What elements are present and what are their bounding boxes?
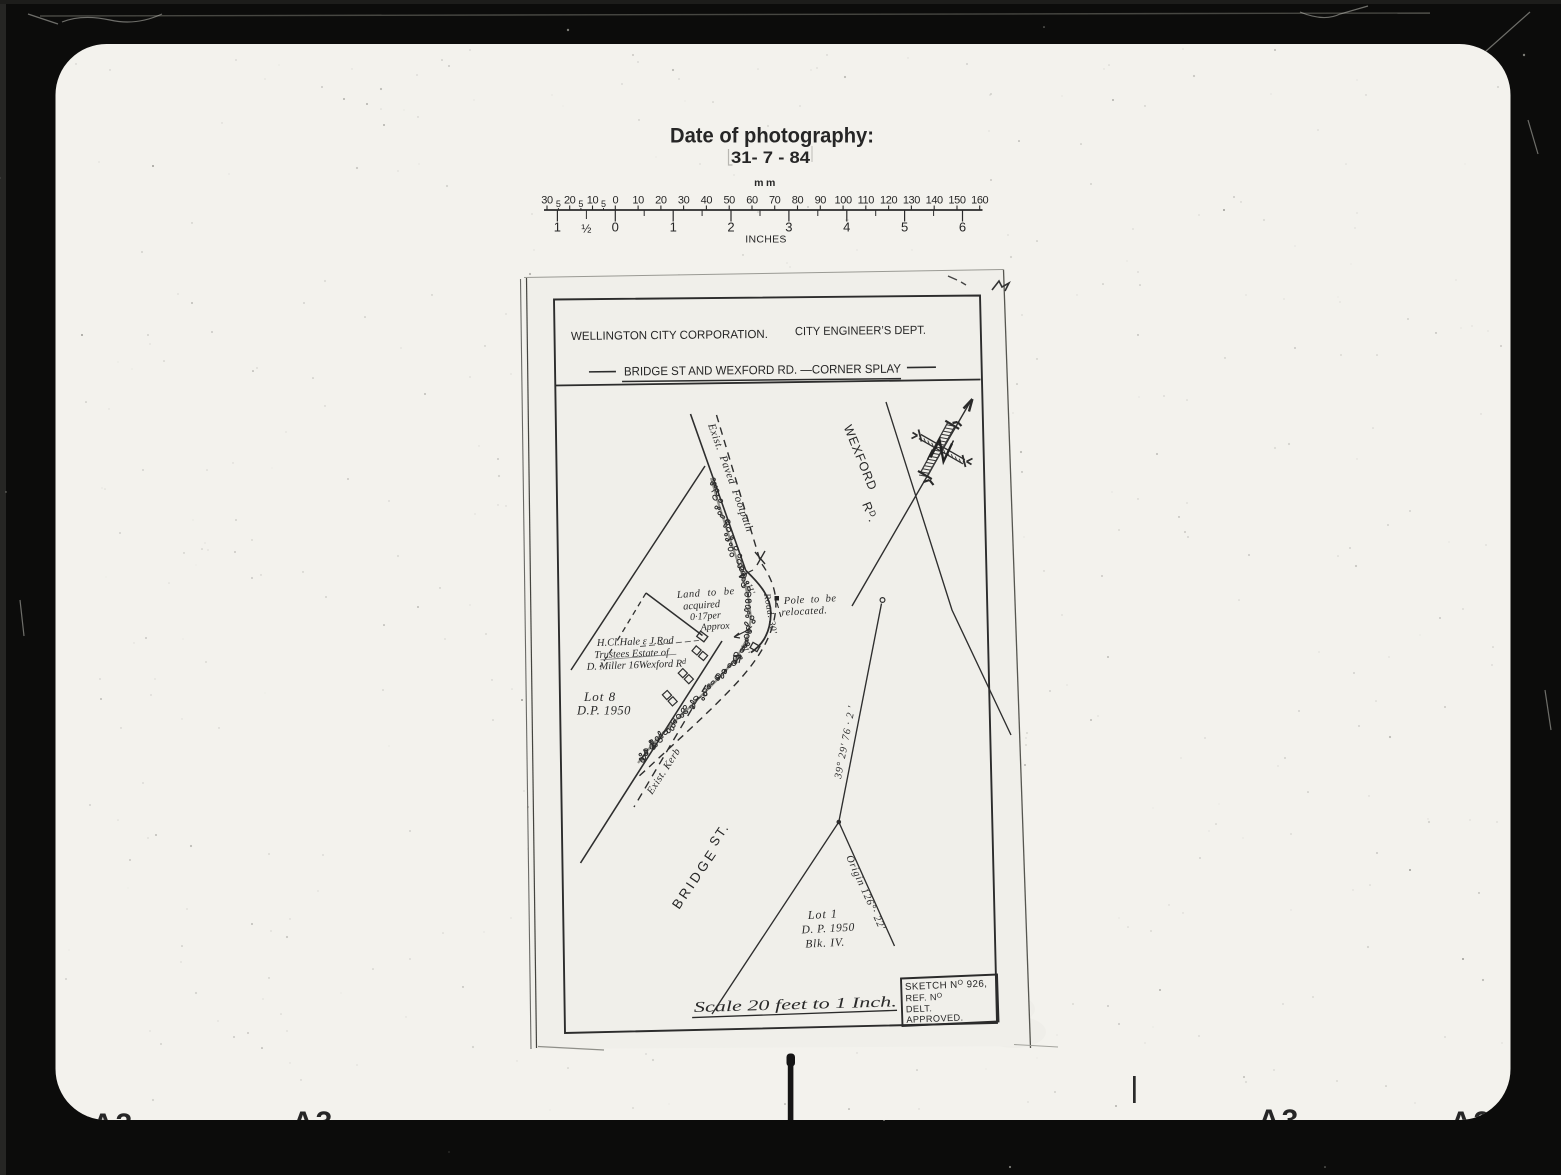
svg-text:30: 30 bbox=[541, 195, 553, 207]
svg-text:140: 140 bbox=[926, 195, 943, 207]
svg-text:10: 10 bbox=[587, 195, 599, 207]
svg-text:6: 6 bbox=[959, 220, 966, 235]
svg-text:5: 5 bbox=[556, 199, 561, 209]
svg-text:2: 2 bbox=[727, 220, 734, 235]
svg-text:20: 20 bbox=[655, 195, 667, 207]
svg-text:DELT.: DELT. bbox=[906, 1003, 933, 1014]
svg-text:90: 90 bbox=[815, 195, 827, 207]
svg-text:BRIDGE ST AND WEXFORD RD. —: BRIDGE ST AND WEXFORD RD. —CORNER SPLAY bbox=[624, 362, 901, 379]
svg-text:30: 30 bbox=[678, 195, 690, 207]
svg-text:80: 80 bbox=[792, 195, 804, 207]
svg-text:60: 60 bbox=[746, 195, 758, 207]
svg-text:0: 0 bbox=[612, 220, 619, 235]
svg-text:20: 20 bbox=[564, 195, 576, 207]
svg-text:150: 150 bbox=[948, 195, 965, 207]
svg-text:Lot 8: Lot 8 bbox=[583, 689, 616, 704]
svg-text:10: 10 bbox=[632, 195, 644, 207]
svg-text:0: 0 bbox=[612, 195, 618, 207]
svg-text:Blk. IV.: Blk. IV. bbox=[805, 937, 845, 951]
svg-text:½: ½ bbox=[581, 222, 591, 236]
svg-text:160: 160 bbox=[971, 195, 988, 207]
svg-text:5: 5 bbox=[601, 199, 606, 209]
svg-text:Lot 1: Lot 1 bbox=[806, 906, 838, 922]
svg-text:D.P. 1950: D.P. 1950 bbox=[576, 704, 631, 718]
svg-text:70: 70 bbox=[769, 195, 781, 207]
svg-text:Date of photography:: Date of photography: bbox=[670, 124, 874, 148]
svg-text:mm: mm bbox=[754, 177, 778, 189]
svg-text:WELLINGTON CITY CORPORATION.: WELLINGTON CITY CORPORATION. bbox=[571, 327, 768, 343]
svg-text:50: 50 bbox=[723, 195, 735, 207]
svg-text:4: 4 bbox=[843, 220, 850, 235]
svg-text:120: 120 bbox=[880, 195, 897, 207]
svg-text:31- 7 - 84: 31- 7 - 84 bbox=[731, 149, 811, 167]
svg-text:40: 40 bbox=[701, 195, 713, 207]
svg-text:110: 110 bbox=[858, 195, 875, 207]
svg-text:1: 1 bbox=[670, 220, 677, 235]
svg-text:3: 3 bbox=[785, 220, 792, 235]
svg-text:Approx: Approx bbox=[699, 620, 730, 633]
svg-text:5: 5 bbox=[901, 220, 908, 235]
svg-text:100: 100 bbox=[835, 195, 852, 207]
svg-text:1: 1 bbox=[554, 220, 561, 235]
svg-text:INCHES: INCHES bbox=[745, 234, 786, 246]
svg-text:130: 130 bbox=[903, 195, 920, 207]
svg-text:5: 5 bbox=[578, 199, 583, 209]
svg-text:CITY ENGINEER’S DEPT.: CITY ENGINEER’S DEPT. bbox=[795, 323, 926, 338]
